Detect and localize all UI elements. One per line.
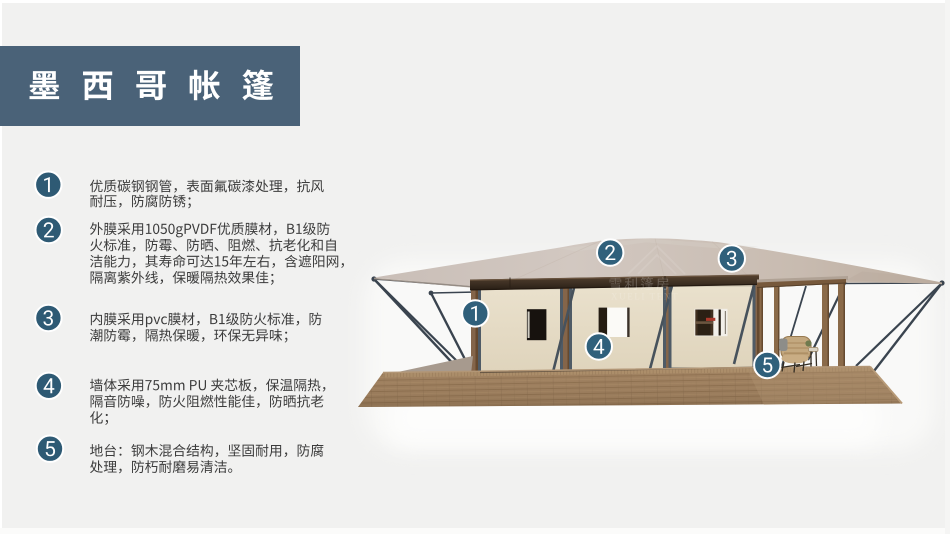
svg-text:XUELI TENT: XUELI TENT [611, 292, 679, 302]
